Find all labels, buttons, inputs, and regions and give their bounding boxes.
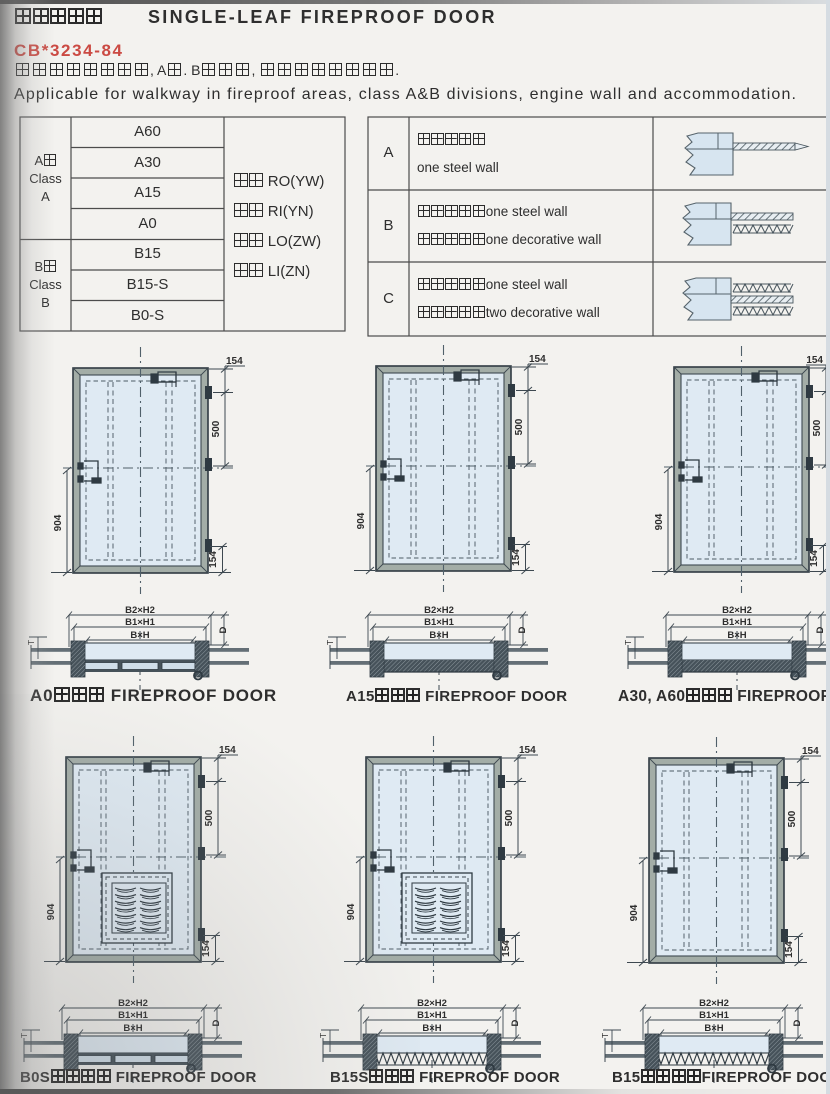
svg-text:500: 500 — [812, 419, 823, 436]
svg-text:D: D — [218, 626, 229, 633]
svg-text:154: 154 — [802, 746, 819, 757]
svg-text:500: 500 — [211, 420, 222, 437]
svg-text:B1×H1: B1×H1 — [699, 1010, 730, 1021]
svg-text:154: 154 — [529, 354, 546, 365]
svg-text:B2×H2: B2×H2 — [722, 605, 752, 616]
svg-text:154: 154 — [501, 940, 512, 957]
svg-text:154: 154 — [511, 549, 522, 566]
svg-text:B2×H2: B2×H2 — [125, 605, 155, 616]
svg-text:B×H: B×H — [429, 630, 448, 641]
svg-text:500: 500 — [504, 809, 515, 826]
svg-text:904: 904 — [629, 904, 640, 921]
svg-text:154: 154 — [784, 941, 795, 958]
svg-text:B2×H2: B2×H2 — [417, 998, 447, 1009]
svg-text:B×H: B×H — [704, 1023, 723, 1034]
svg-text:D: D — [510, 1019, 521, 1026]
svg-text:904: 904 — [356, 512, 367, 529]
svg-text:B×H: B×H — [130, 630, 149, 641]
svg-text:154: 154 — [519, 745, 536, 756]
svg-text:T: T — [623, 640, 633, 645]
svg-text:B1×H1: B1×H1 — [417, 1010, 448, 1021]
svg-text:B1×H1: B1×H1 — [125, 617, 156, 628]
svg-text:D: D — [815, 626, 826, 633]
svg-text:D: D — [792, 1019, 803, 1026]
svg-text:154: 154 — [208, 551, 219, 568]
svg-text:B2×H2: B2×H2 — [424, 605, 454, 616]
svg-text:B1×H1: B1×H1 — [722, 617, 753, 628]
svg-text:154: 154 — [806, 355, 823, 366]
svg-text:B2×H2: B2×H2 — [699, 998, 729, 1009]
svg-text:D: D — [517, 626, 528, 633]
svg-text:B×H: B×H — [422, 1023, 441, 1034]
svg-text:T: T — [325, 640, 335, 645]
svg-text:154: 154 — [226, 356, 243, 367]
svg-text:500: 500 — [787, 810, 798, 827]
svg-text:500: 500 — [514, 418, 525, 435]
svg-text:B1×H1: B1×H1 — [424, 617, 455, 628]
svg-text:154: 154 — [809, 550, 820, 567]
svg-text:T: T — [600, 1033, 610, 1038]
svg-text:904: 904 — [654, 513, 665, 530]
svg-text:B×H: B×H — [727, 630, 746, 641]
